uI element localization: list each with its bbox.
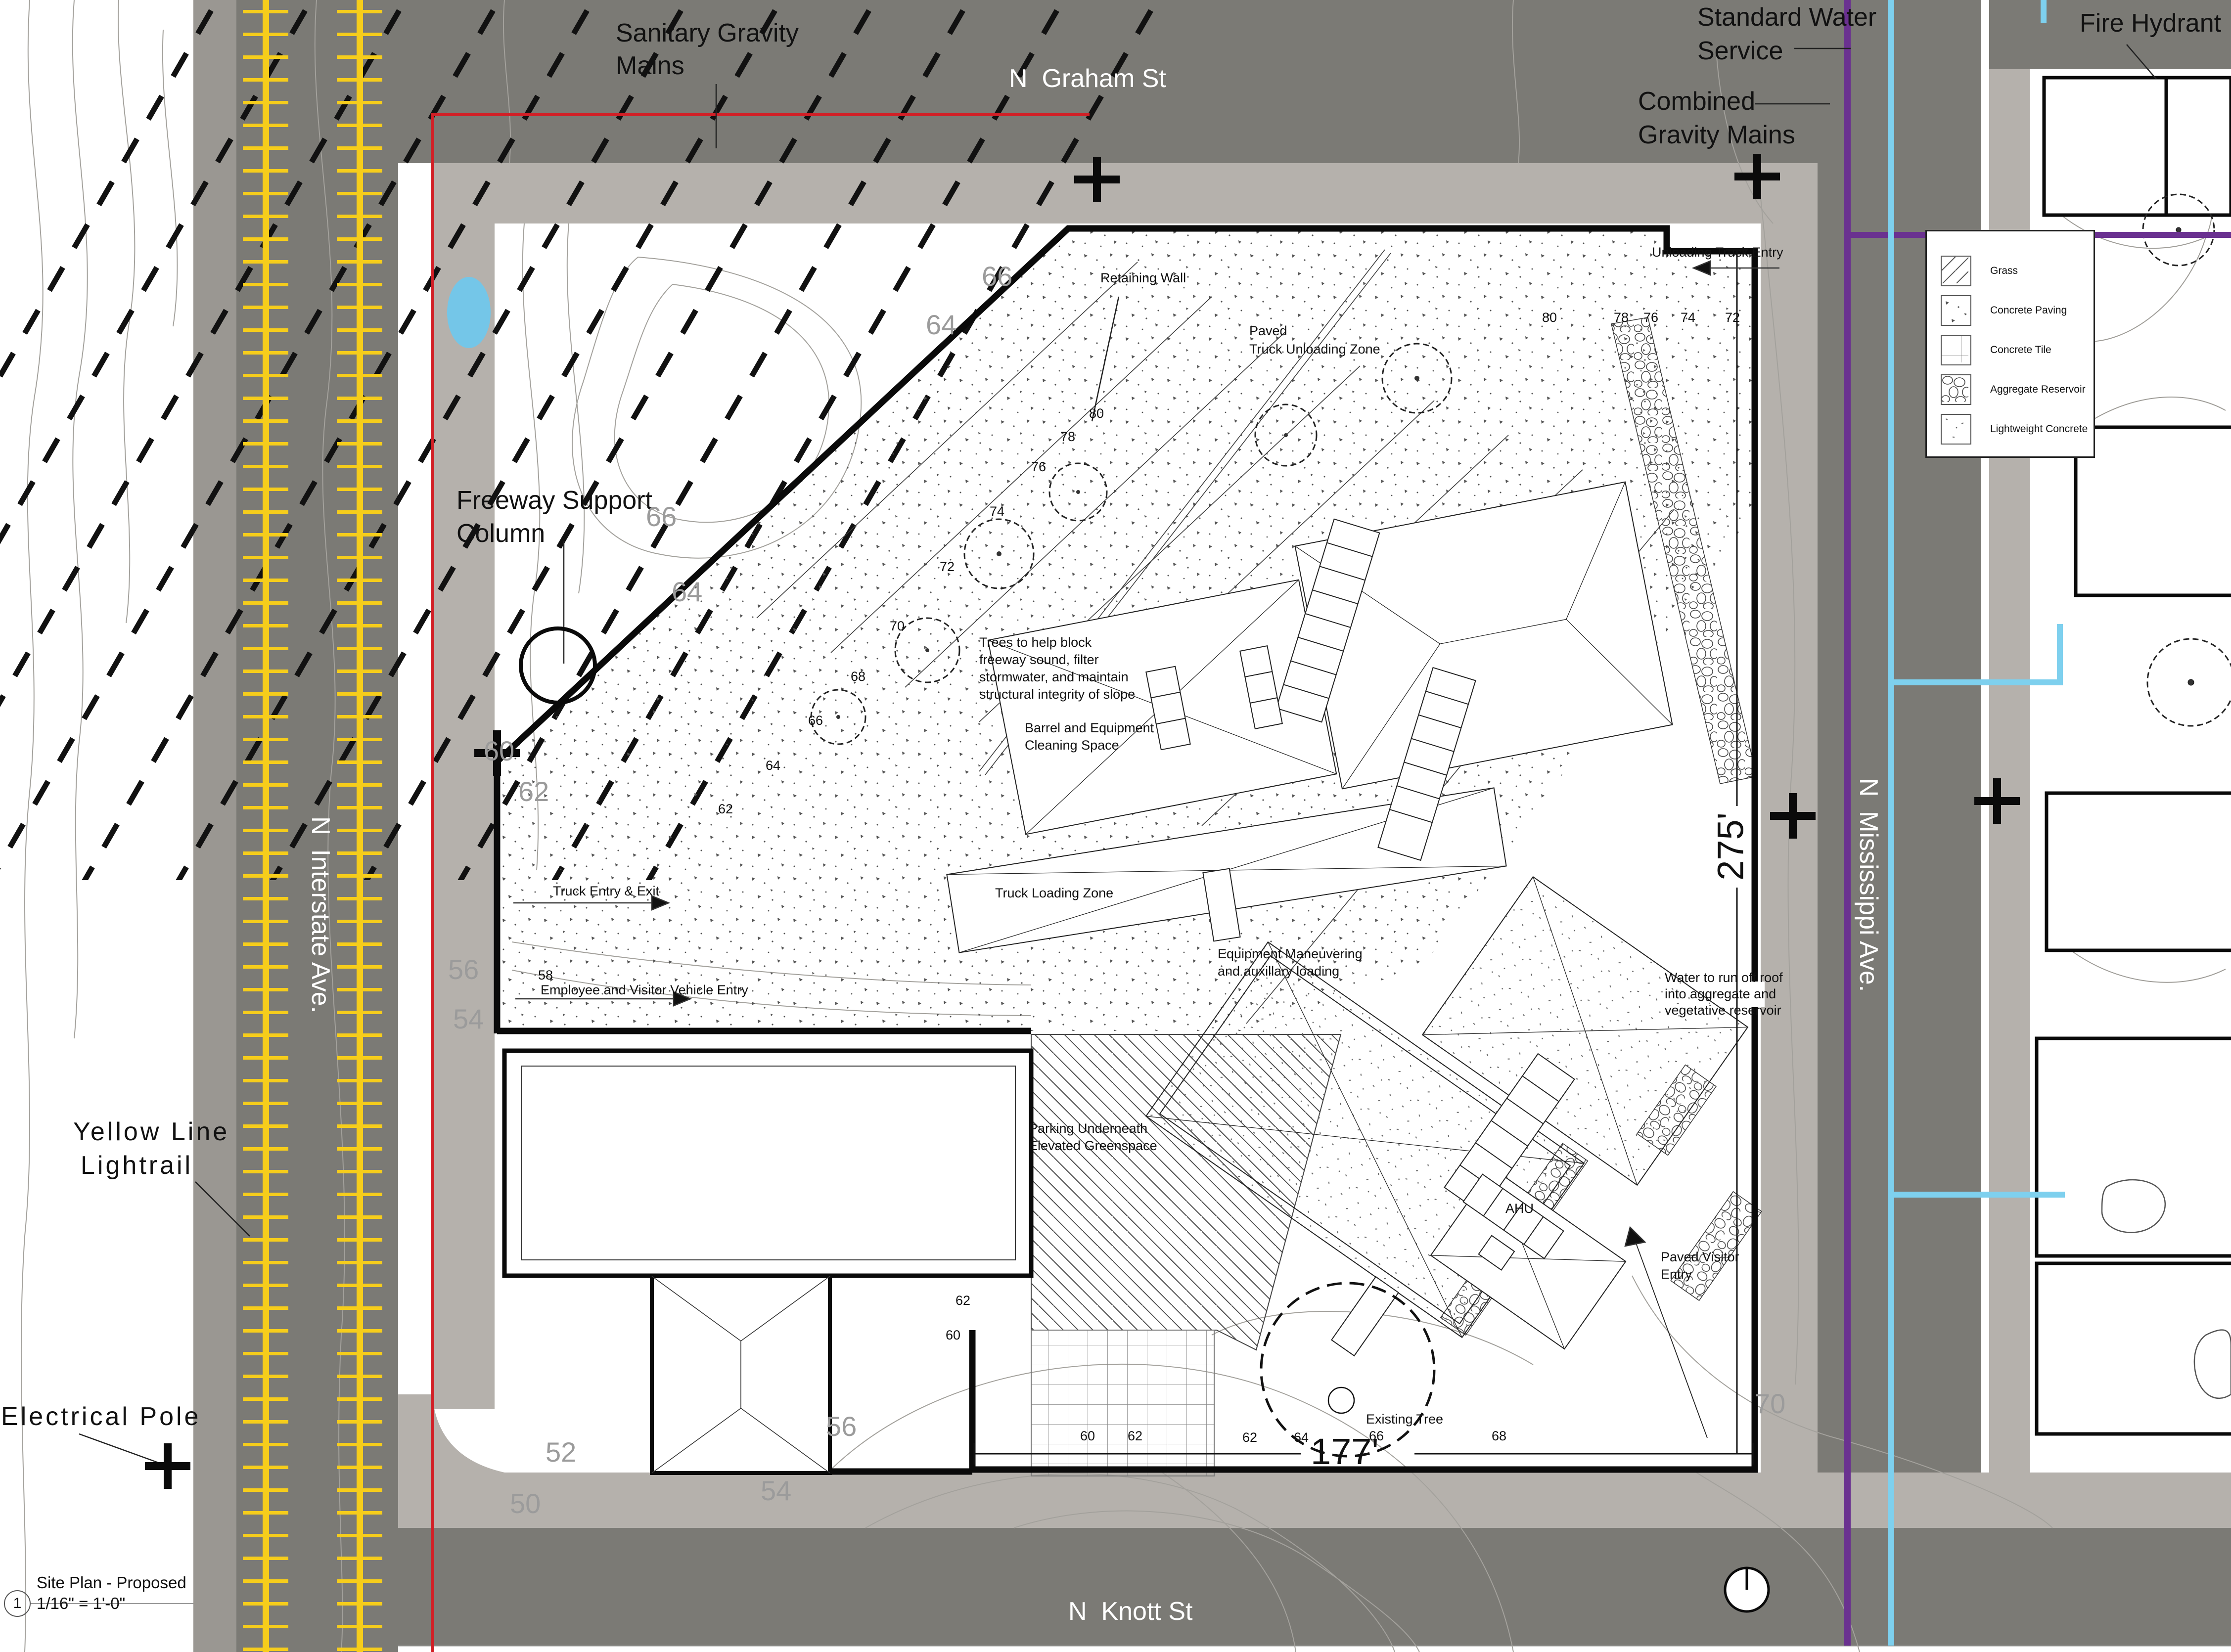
south-sidewalk: [398, 1473, 2231, 1528]
note-mask: [1730, 982, 1765, 1007]
street-name-north: N Graham St: [1009, 65, 1166, 92]
fire-hydrant-tick: [2041, 0, 2047, 23]
legend-box: [1925, 230, 2095, 458]
road-shoulder-strip: [193, 0, 236, 1652]
north-arrow-icon: [1725, 1568, 1769, 1611]
water-branch: [1891, 1192, 2065, 1198]
west-sidewalk: [432, 163, 495, 1409]
sheet-number-badge: 1: [4, 1590, 31, 1617]
water-branch: [1891, 679, 2063, 685]
freeway-column-dot: [447, 277, 491, 348]
gravity-main-line: [1844, 0, 1851, 1646]
n-knott-road: [398, 1528, 2231, 1646]
water-service-line: [1888, 0, 1894, 1646]
hip-roof-building: [652, 1276, 830, 1473]
street-name-west: N Interstate Ave.: [307, 816, 334, 1013]
sheet-bottom-strip: [398, 1646, 2231, 1652]
sheet-scale: 1/16" = 1'-0": [37, 1595, 125, 1612]
street-name-east: N Mississippi Ave.: [1855, 778, 1882, 992]
water-branch: [2057, 624, 2063, 685]
street-name-south: N Knott St: [1068, 1598, 1192, 1625]
red-boundary-line: [431, 113, 434, 1652]
site-plan-page: Sanitary GravityMainsStandard WaterServi…: [0, 0, 2231, 1652]
red-boundary-line: [431, 113, 1090, 116]
north-sidewalk: [495, 163, 1818, 223]
dimension-east: 275': [1712, 812, 1750, 881]
building-footprint: [504, 1051, 1031, 1276]
sheet-title: Site Plan - Proposed: [37, 1574, 186, 1591]
east-sidewalk: [1761, 163, 1818, 1528]
